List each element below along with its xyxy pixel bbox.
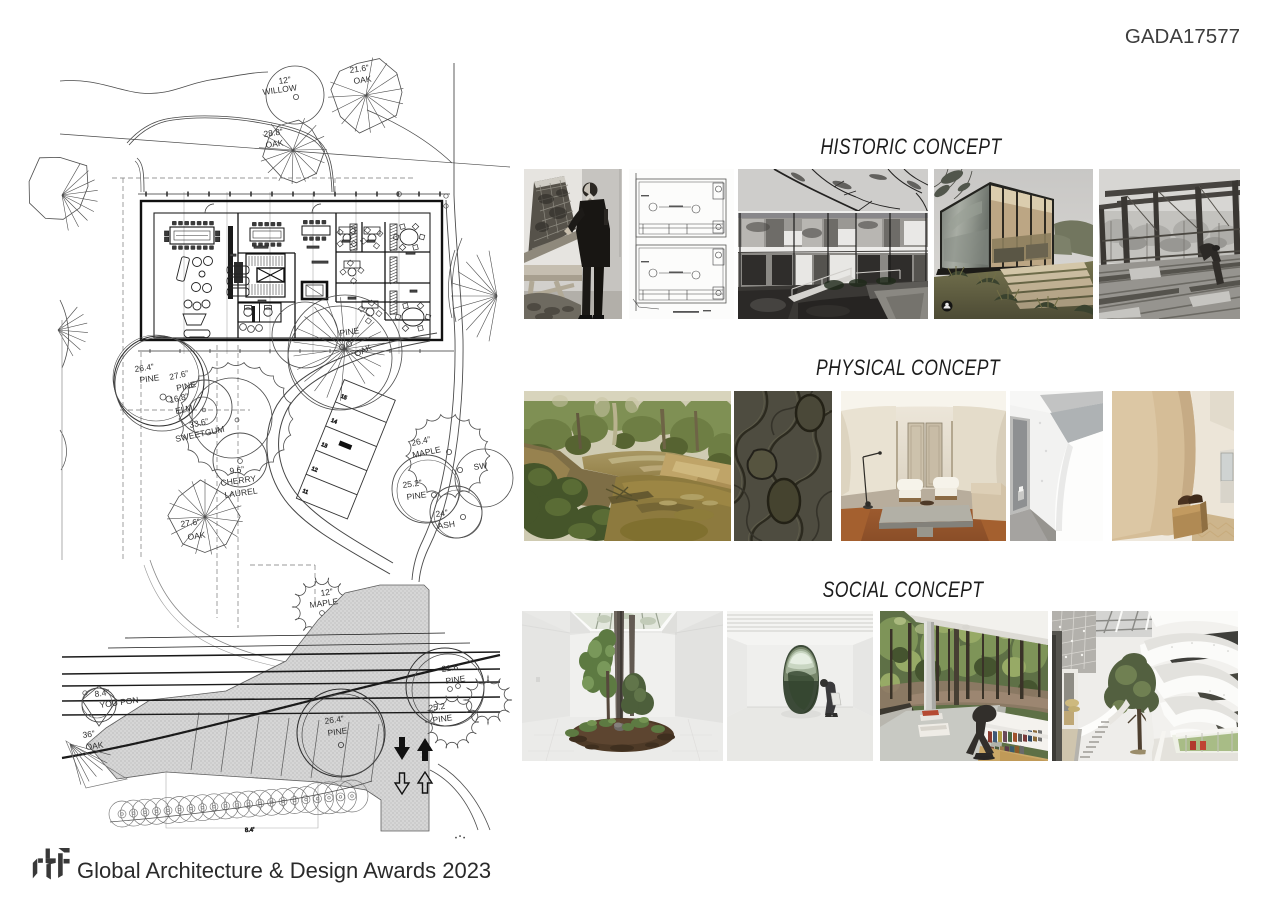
svg-text:. · .: . · . — [455, 833, 465, 840]
svg-text:21.6”: 21.6” — [349, 62, 370, 75]
svg-text:PINE: PINE — [339, 325, 360, 338]
svg-text:OAK: OAK — [353, 74, 372, 86]
svg-text:OAK: OAK — [187, 530, 206, 542]
svg-text:PINE: PINE — [139, 372, 160, 385]
svg-text:PINE: PINE — [445, 673, 466, 686]
svg-text:25.2: 25.2 — [428, 701, 446, 713]
svg-text:26.4”: 26.4” — [134, 361, 155, 374]
svg-text:12: 12 — [310, 466, 318, 474]
svg-text:24”: 24” — [435, 507, 449, 519]
svg-text:PINE: PINE — [432, 712, 453, 725]
svg-text:11: 11 — [301, 488, 309, 496]
svg-text:21.6”: 21.6” — [441, 661, 462, 674]
svg-text:8.4’: 8.4’ — [245, 827, 255, 834]
svg-text:OAK: OAK — [353, 342, 374, 359]
svg-text:14: 14 — [330, 418, 338, 426]
svg-text:WILLOW: WILLOW — [262, 82, 298, 97]
svg-text:13: 13 — [320, 442, 328, 450]
svg-text:36”: 36” — [82, 728, 96, 740]
svg-text:SW: SW — [473, 460, 488, 472]
svg-text:25.2”: 25.2” — [402, 477, 423, 490]
svg-text:LAUREL: LAUREL — [224, 485, 258, 500]
svg-text:OAK: OAK — [265, 138, 284, 150]
svg-text:ELM: ELM — [174, 403, 193, 416]
svg-text:8.4”: 8.4” — [94, 687, 110, 699]
svg-text:27.6”: 27.6” — [180, 516, 201, 529]
svg-text:PINE: PINE — [406, 489, 427, 502]
svg-text:ASH: ASH — [437, 519, 456, 531]
